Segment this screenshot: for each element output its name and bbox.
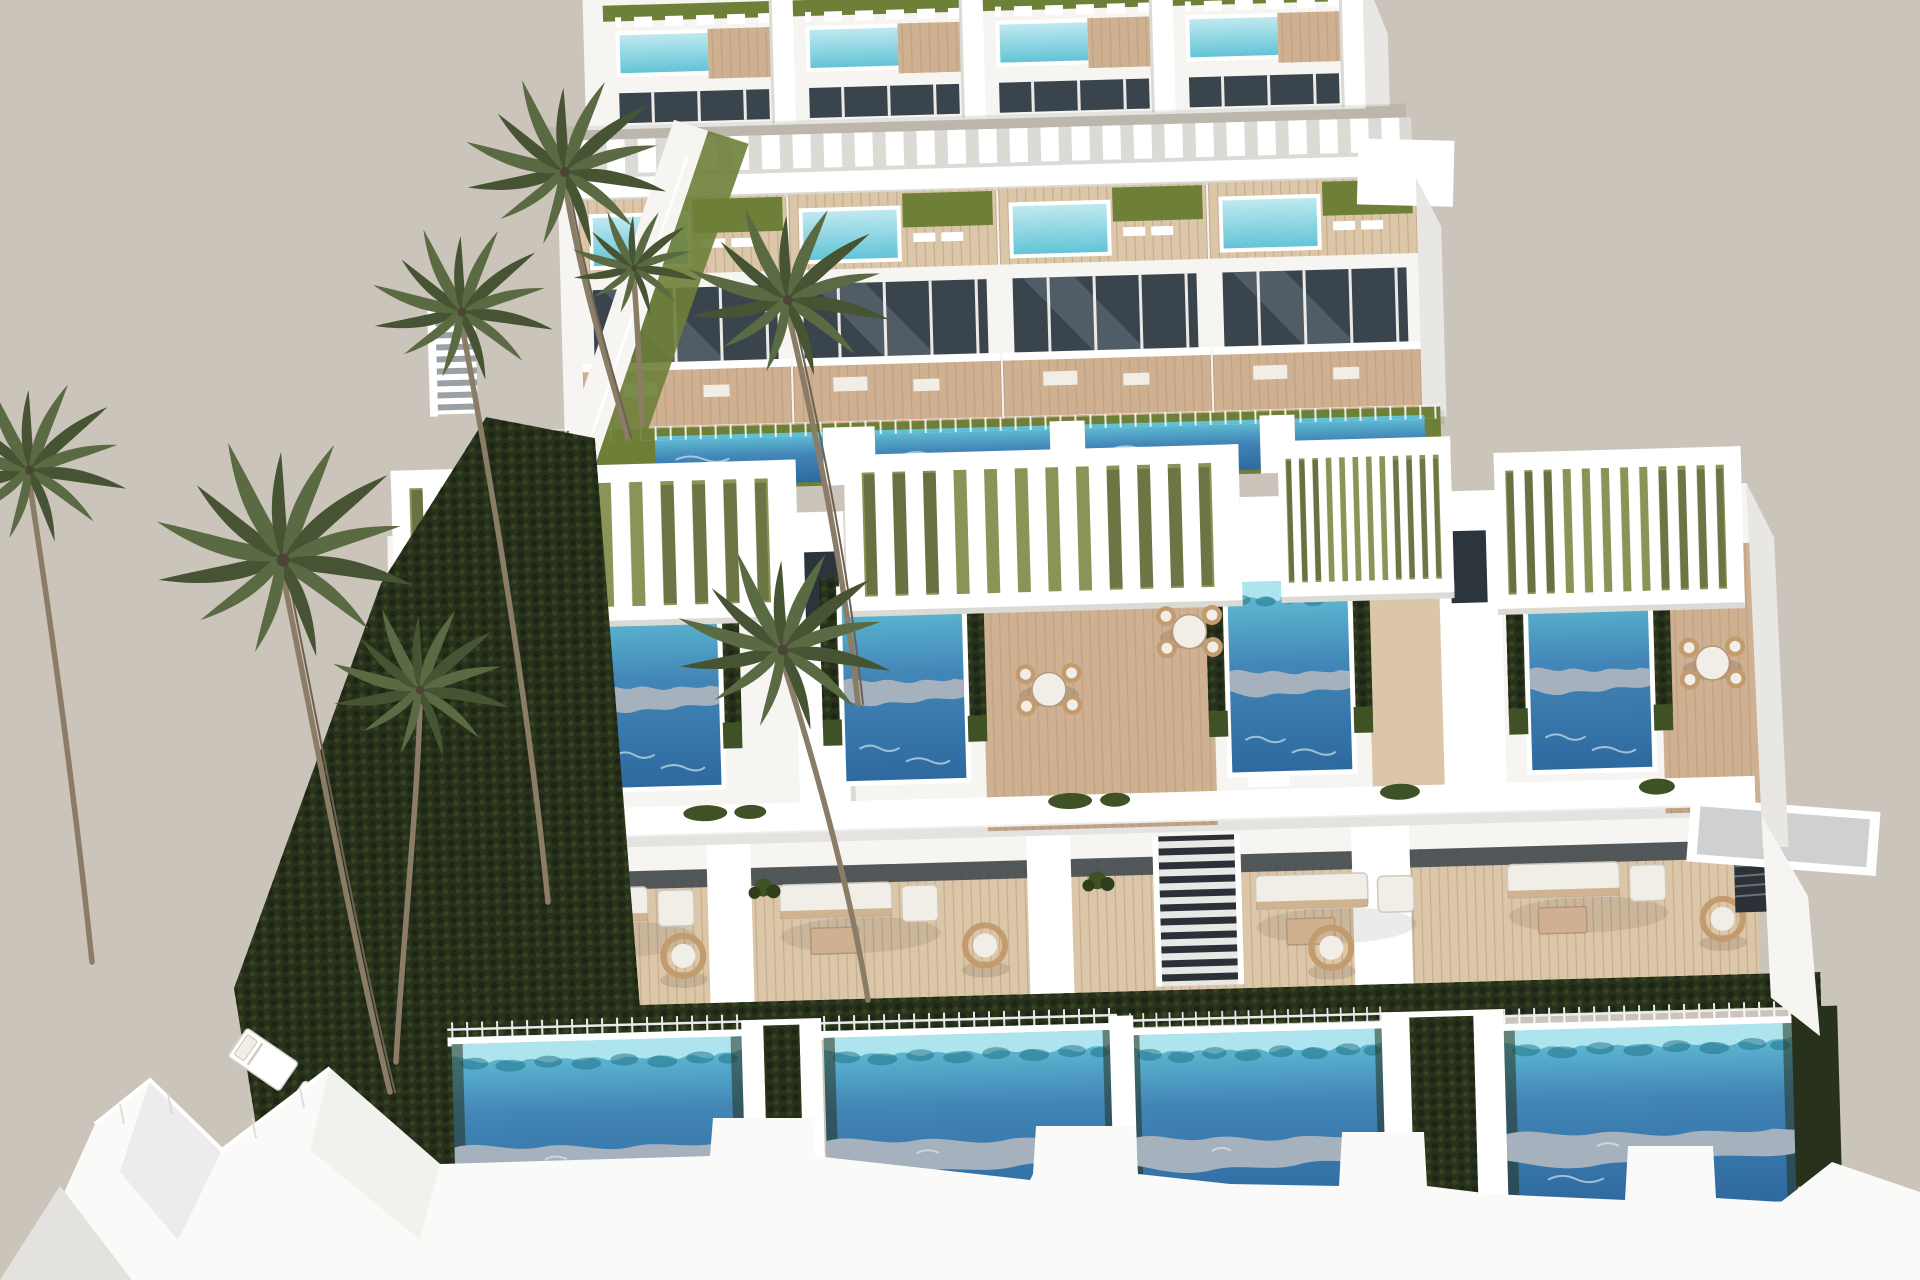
pergola: [1277, 436, 1454, 603]
outdoor-sofa-set: [1255, 871, 1417, 945]
villa-unit-with-rooftop-pool: [792, 0, 986, 122]
window-slot: [1450, 530, 1488, 603]
villa-unit-with-rooftop-pool: [1172, 0, 1366, 112]
dark-staircase: [1152, 834, 1244, 986]
outdoor-sofa-set: [1507, 860, 1669, 934]
render-canvas: architectural-render: [0, 0, 1920, 1280]
villa-unit-two-storey: [993, 161, 1216, 425]
villa-unit-with-rooftop-pool: [982, 0, 1176, 117]
pergola: [843, 444, 1242, 617]
terrace-wall: [706, 844, 755, 1021]
terrace-wall: [1026, 835, 1075, 1012]
pergola: [1494, 446, 1745, 615]
villa-unit-with-rooftop-pool: [602, 0, 796, 128]
corner-pergola: [1357, 138, 1455, 206]
architectural-render-image: architectural-render: [0, 0, 1920, 1280]
